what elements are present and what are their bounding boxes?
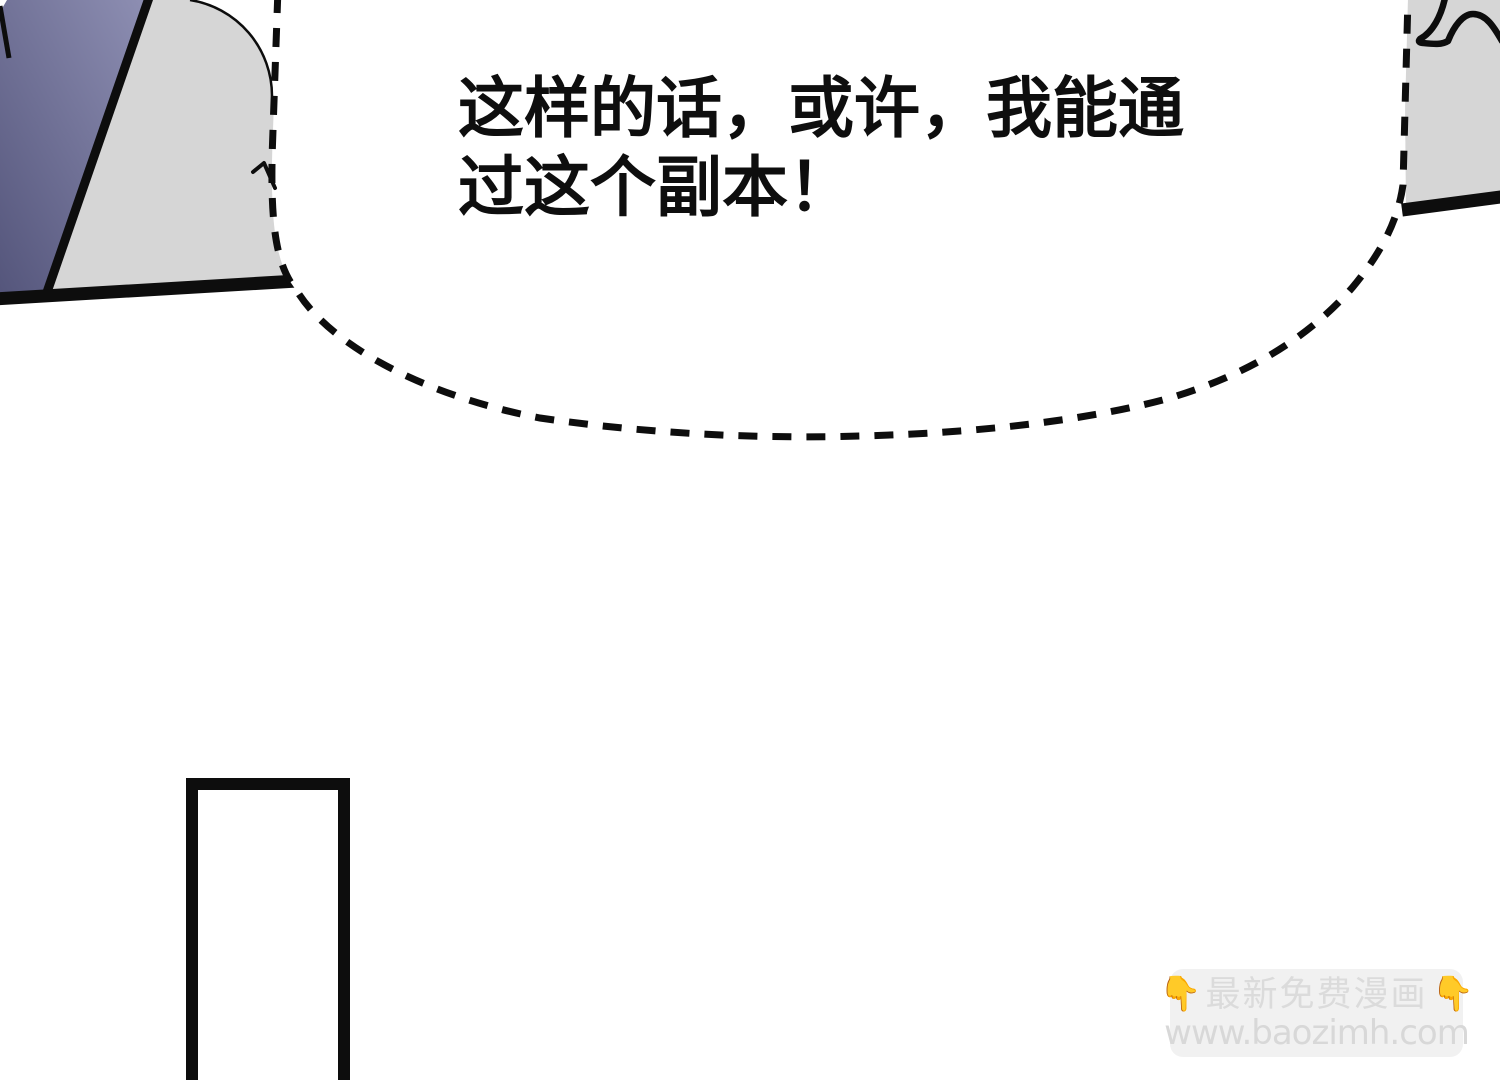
watermark-title: 最新免费漫画: [1206, 977, 1428, 1012]
watermark-title-row: 👇 最新免费漫画 👇: [1159, 977, 1474, 1012]
watermark-url: www.baozimh.com: [1164, 1016, 1469, 1050]
doorframe-rect: [192, 784, 344, 1080]
speech-bubble-text: 这样的话，或许，我能通 过这个副本！: [458, 70, 1308, 228]
point-down-emoji-left: 👇: [1159, 977, 1201, 1011]
watermark: 👇 最新免费漫画 👇 www.baozimh.com: [1170, 969, 1463, 1057]
comic-page: 这样的话，或许，我能通 过这个副本！ 👇 最新免费漫画 👇 www.baozim…: [0, 0, 1500, 1080]
point-down-emoji-right: 👇: [1432, 977, 1474, 1011]
